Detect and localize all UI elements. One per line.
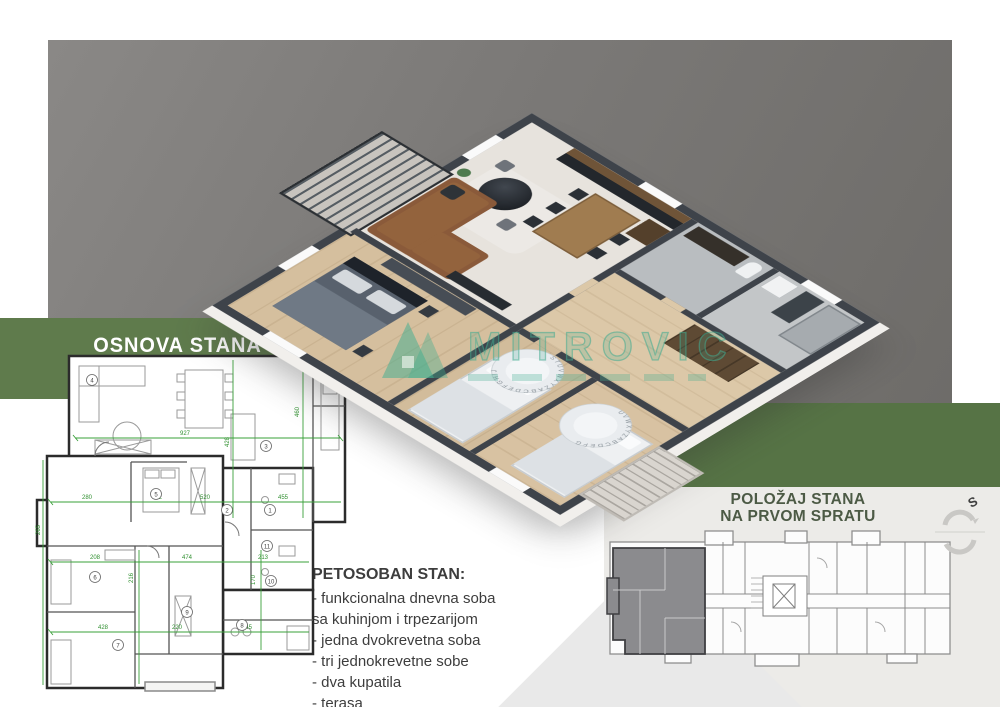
compass-arrow-icon [935, 512, 985, 552]
dim-label: 455 [278, 495, 289, 501]
dim-label: 280 [82, 495, 93, 501]
room-number: 8 [237, 620, 248, 631]
nightstand [352, 345, 373, 358]
position-title-line2: NA PRVOM SPRATU [703, 508, 893, 525]
room-number: 4 [87, 375, 98, 386]
compass-south-label: S [965, 493, 980, 510]
dim-label: 428 [225, 436, 231, 447]
dim-label: 927 [180, 431, 191, 437]
dim-label: 216 [129, 572, 135, 583]
flyer-canvas: OSNOVA STANA POLOŽAJ STANA NA PRVOM SPRA… [0, 0, 1000, 707]
bed-pillow [485, 363, 540, 396]
floorplan-2d: 927 428 460 592 280 265 520 455 474 208 … [35, 350, 350, 695]
highlighted-apartment [607, 548, 705, 654]
position-title-line1: POLOŽAJ STANA [703, 491, 893, 508]
dim-label: 220 [172, 625, 183, 631]
room-number: 1 [265, 505, 276, 516]
svg-text:10: 10 [268, 580, 275, 586]
bed-blanket [513, 434, 615, 495]
description-heading: PETOSOBAN STAN: [312, 566, 582, 584]
dim-label: 170 [251, 574, 257, 585]
room-number: 7 [113, 640, 124, 651]
description-line: sa kuhinjom i trpezarijom [312, 609, 582, 630]
compass: S [933, 492, 993, 558]
description-line: - funkcionalna dnevna soba [312, 588, 582, 609]
single-bed [407, 357, 551, 444]
svg-text:11: 11 [264, 545, 271, 551]
dim-label: 460 [295, 406, 301, 417]
description-line: - dva kupatila [312, 672, 582, 693]
logo-triangle [382, 322, 434, 378]
dim-label: 428 [98, 625, 109, 631]
room-number: 10 [266, 576, 277, 587]
room-number: 6 [90, 572, 101, 583]
building-position-plan [605, 528, 957, 678]
dim-label: 265 [36, 524, 42, 535]
rug-circle [477, 340, 579, 401]
room-number: 2 [222, 505, 233, 516]
room-number: 11 [262, 541, 273, 552]
description-line: - terasa [312, 693, 582, 707]
logo-triangle [408, 332, 448, 378]
room-number: 3 [261, 441, 272, 452]
green-band-right [604, 403, 1000, 487]
window [489, 467, 531, 492]
description-line: - tri jednokrevetne sobe [312, 651, 582, 672]
room-number: 5 [151, 489, 162, 500]
rug-inner [497, 352, 559, 389]
dim-label: 208 [90, 555, 101, 561]
bedroom-south-floor [394, 332, 592, 451]
position-title: POLOŽAJ STANA NA PRVOM SPRATU [703, 491, 893, 525]
room-number: 9 [182, 607, 193, 618]
dim-label: 520 [200, 495, 211, 501]
logo-window [402, 356, 414, 368]
bed-blanket [410, 379, 513, 441]
rug-letters: STUVWXYZABCDEFGHIJ [481, 343, 580, 403]
alphabet-rug: STUVWXYZABCDEFGHIJ [467, 334, 589, 407]
apartment-description: PETOSOBAN STAN: - funkcionalna dnevna so… [312, 566, 582, 707]
door-opening [534, 339, 562, 356]
dim-label: 474 [182, 555, 193, 561]
dim-label: 213 [258, 555, 269, 561]
description-line: - jedna dvokrevetna soba [312, 630, 582, 651]
plan-walls-outline [37, 356, 345, 691]
wall [470, 377, 598, 454]
brand-logo-icon [382, 322, 460, 384]
